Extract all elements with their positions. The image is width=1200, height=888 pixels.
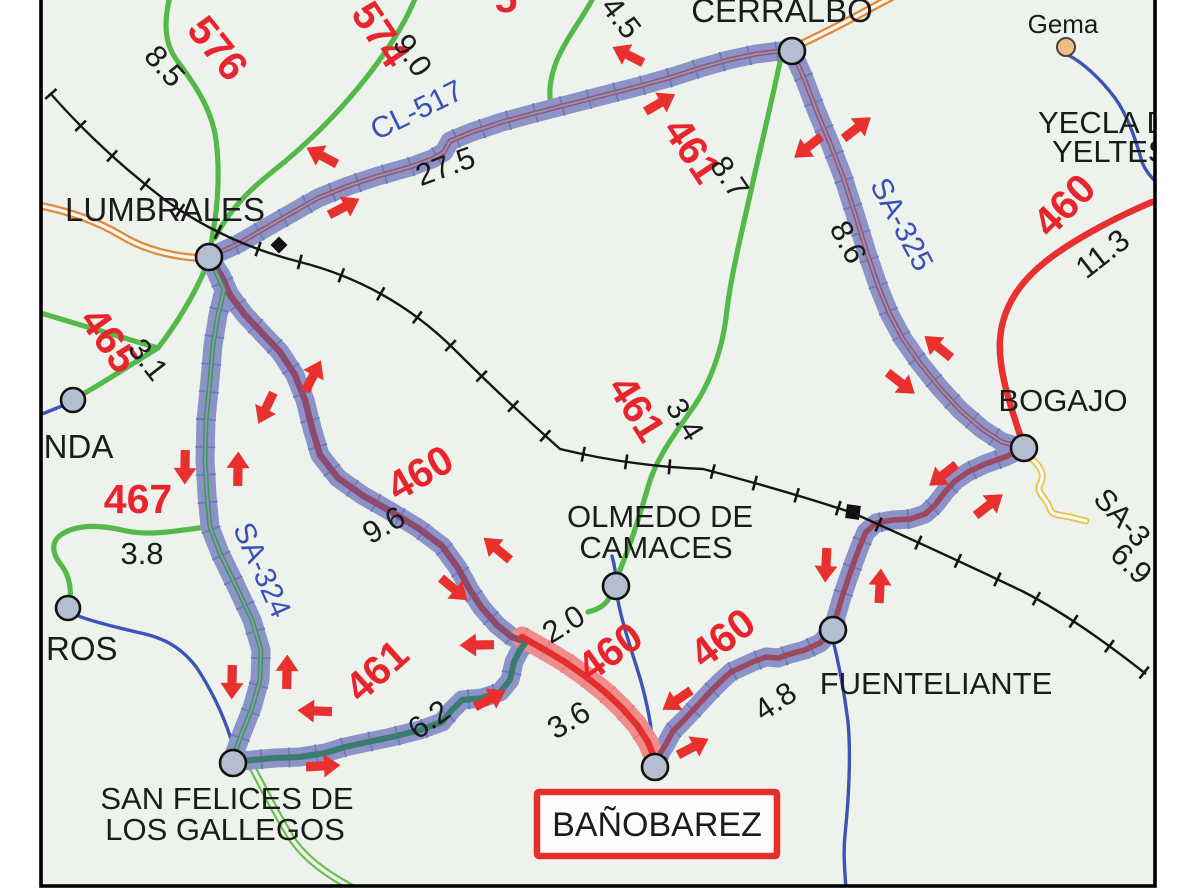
label-gema: Gema: [1028, 9, 1099, 39]
label-aceiteros-partial: ROS: [46, 630, 118, 667]
label-cerralbo: CERRALBO: [691, 0, 873, 29]
label-dist-3-8: 3.8: [120, 536, 163, 571]
label-san-felices-line2: LOS GALLEGOS: [105, 812, 345, 847]
label-lumbrales: LUMBRALES: [65, 191, 265, 228]
railway-station-square-icon: [845, 504, 861, 520]
label-fuenteliante: FUENTELIANTE: [820, 666, 1053, 701]
node-fuenteliante: [820, 617, 846, 643]
detour-map: LUMBRALES CERRALBO BOGAJO OLMEDO DE CAMA…: [0, 0, 1200, 888]
label-redonda-partial: ONDA: [18, 428, 113, 465]
node-lumbrales: [196, 244, 222, 270]
map-canvas: LUMBRALES CERRALBO BOGAJO OLMEDO DE CAMA…: [0, 0, 1200, 888]
label-san-felices-line1: SAN FELICES DE: [100, 781, 353, 816]
node-san-felices: [220, 750, 246, 776]
node-gema: [1057, 38, 1075, 56]
node-bogajo: [1011, 435, 1037, 461]
label-bogajo: BOGAJO: [998, 383, 1127, 418]
node-cerralbo: [779, 38, 805, 64]
banobarez-callout: BAÑOBAREZ: [537, 792, 777, 856]
node-village-west: [61, 388, 85, 412]
label-road-467: 467: [104, 476, 172, 522]
node-village-southwest: [56, 596, 80, 620]
label-olmedo-line2: CAMACES: [579, 530, 732, 565]
label-banobarez: BAÑOBAREZ: [552, 806, 762, 844]
node-banobarez: [642, 754, 668, 780]
label-yecla-line2: YELTES: [1052, 134, 1169, 169]
label-road-partial-top: 5: [495, 0, 518, 21]
label-olmedo-line1: OLMEDO DE: [567, 499, 753, 534]
node-olmedo: [603, 573, 629, 599]
